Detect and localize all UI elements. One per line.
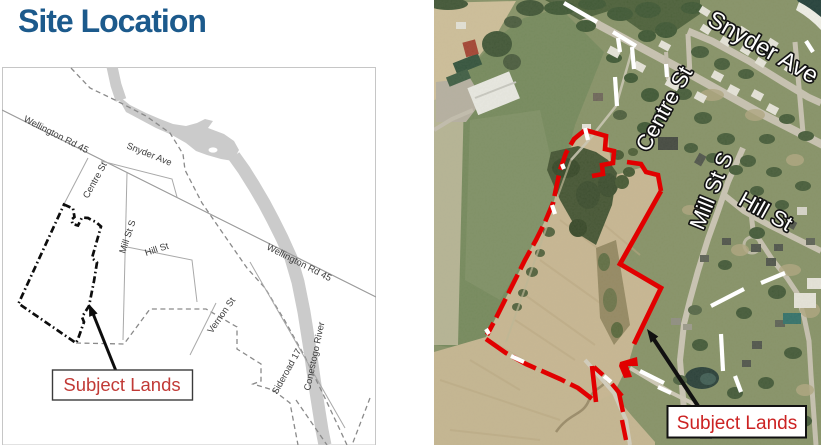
svg-text:Subject Lands: Subject Lands — [63, 374, 180, 395]
svg-text:Subject Lands: Subject Lands — [677, 413, 797, 434]
